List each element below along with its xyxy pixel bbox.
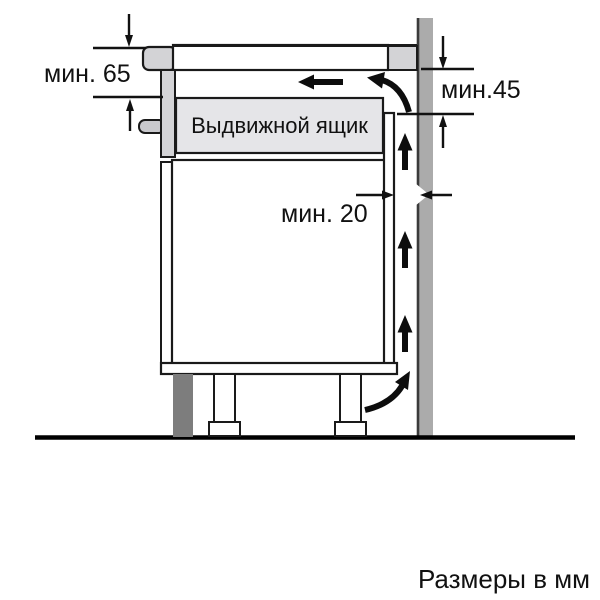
leg-foot-right: [335, 422, 366, 436]
airflow-arrow-up3-head: [398, 315, 413, 333]
airflow-arrow-bottom-curve: [365, 386, 402, 410]
dim-min65-arrow-up-head: [126, 99, 134, 111]
cabinet-interior: [172, 160, 385, 365]
min45-label: мин.45: [441, 77, 521, 103]
drawer-front-panel: [161, 70, 175, 157]
cabinet-bottom-panel: [161, 363, 397, 374]
dim-min45-arrow-up-head: [439, 115, 447, 127]
cabinet-back-panel: [384, 113, 394, 365]
airflow-arrow-up1-head: [398, 133, 413, 151]
dim-min45-arrow-down-head: [439, 57, 447, 69]
drawer-label: Выдвижной ящик: [176, 98, 383, 153]
plinth: [173, 374, 193, 437]
hob-right-edge: [386, 46, 417, 70]
worktop: [173, 45, 388, 70]
cabinet-side-panel: [161, 162, 172, 373]
units-note: Размеры в мм: [300, 564, 590, 595]
airflow-arrow-left-head: [298, 75, 314, 90]
wall: [418, 18, 433, 438]
airflow-arrow-top-curve-head: [367, 72, 385, 89]
hob-left-edge: [143, 47, 176, 70]
min65-label: мин. 65: [44, 61, 131, 87]
airflow-arrow-top-curve: [382, 80, 409, 112]
leg-foot-left: [209, 422, 240, 436]
min20-label: мин. 20: [281, 201, 368, 227]
airflow-arrow-up2-head: [398, 231, 413, 249]
dim-min65-arrow-down-head: [125, 35, 133, 47]
installation-diagram: мин. 65 мин.45 мин. 20 Выдвижной ящик Ра…: [0, 0, 600, 600]
cabinet-leg-right: [340, 374, 361, 423]
cabinet-leg-left: [214, 374, 235, 423]
